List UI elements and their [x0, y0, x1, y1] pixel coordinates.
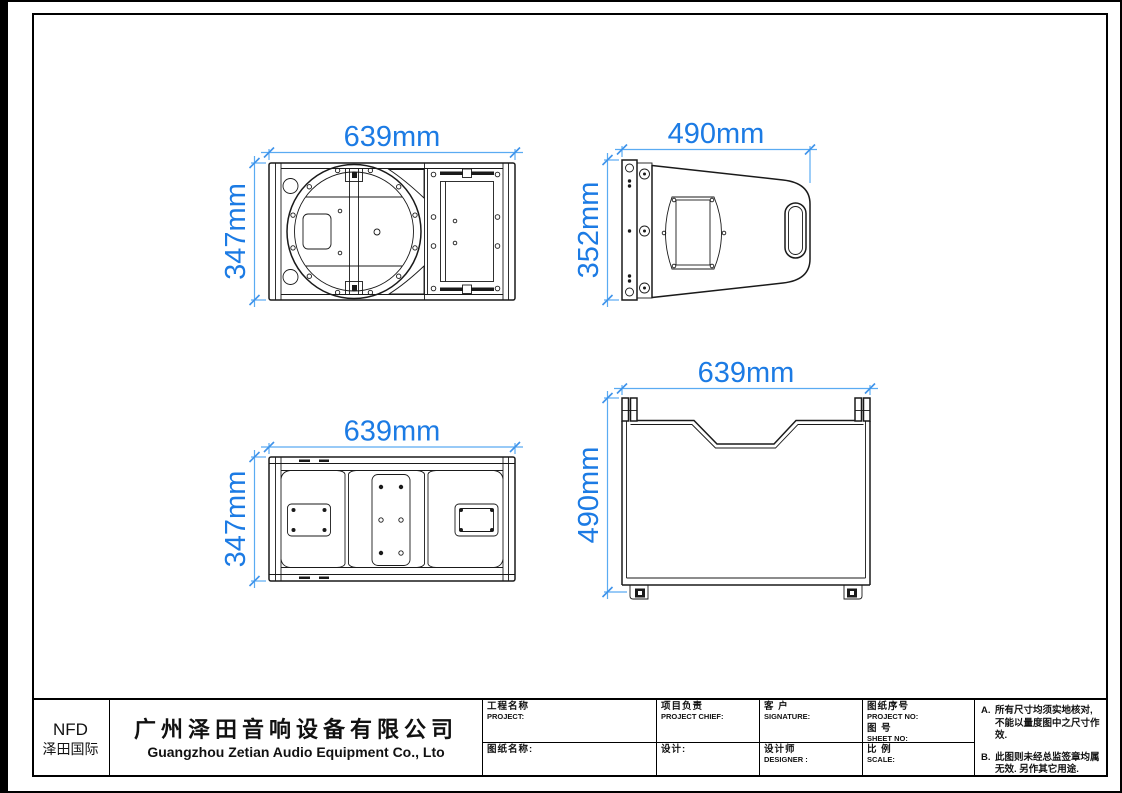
project-label-cn: 工程名称 — [487, 702, 656, 712]
rear-left-plate — [288, 504, 331, 536]
rear-height-dimension: 347mm — [220, 450, 266, 588]
center-brace — [346, 169, 363, 295]
woofer-cutout — [283, 165, 421, 299]
port-cutout — [303, 214, 331, 249]
top-width-dimension: 639mm — [614, 357, 878, 395]
rear-dividers — [337, 471, 436, 568]
speaker-cabinet-drawing: 639mm 347mm — [0, 0, 1122, 700]
note-a-id: A. — [981, 705, 995, 743]
chief-label-cn: 项目负责 — [661, 702, 759, 712]
project-no-label-en: PROJECT NO: — [867, 712, 974, 721]
side-handle — [785, 203, 806, 258]
customer-column: 客 户 SIGNATURE: 设计师 DESIGNER : — [760, 700, 863, 777]
design-label: 设计: — [661, 745, 759, 755]
company-name-cn: 广州泽田音响设备有限公司 — [134, 717, 458, 743]
front-width-label: 639mm — [344, 121, 441, 153]
note-a-text: 所有尺寸均须实地核对, 不能以量度图中之尺寸作效. — [995, 705, 1104, 743]
rear-view: 639mm 347mm — [220, 416, 523, 589]
side-access-panel — [662, 197, 726, 269]
chief-column: 项目负责 PROJECT CHIEF: 设计: — [657, 700, 760, 777]
note-a: A. 所有尺寸均须实地核对, 不能以量度图中之尺寸作效. — [981, 705, 1104, 743]
numbers-column: 图纸序号 PROJECT NO: 图 号 SHEET NO: 比 例 SCALE… — [863, 700, 975, 777]
brand-cell: NFD 泽田国际 — [32, 700, 110, 777]
project-chief-field: 项目负责 PROJECT CHIEF: — [657, 700, 759, 743]
note-b: B. 此图则未经总监签章均属无效. 另作其它用途. — [981, 752, 1104, 777]
company-cell: 广州泽田音响设备有限公司 Guangzhou Zetian Audio Equi… — [110, 700, 483, 777]
company-name-en: Guangzhou Zetian Audio Equipment Co., Lt… — [147, 743, 444, 761]
sheet-no-label-cn: 图 号 — [867, 724, 974, 734]
drawing-name-label: 图纸名称: — [487, 745, 656, 755]
customer-label-en: SIGNATURE: — [764, 712, 862, 721]
project-no-label-cn: 图纸序号 — [867, 702, 974, 712]
side-width-label: 490mm — [668, 118, 765, 150]
project-field: 工程名称 PROJECT: — [483, 700, 656, 743]
front-view: 639mm 347mm — [220, 121, 523, 307]
front-height-label: 347mm — [220, 183, 252, 280]
designer-label-cn: 设计师 — [764, 745, 862, 755]
note-b-text: 此图则未经总监签章均属无效. 另作其它用途. — [995, 752, 1104, 777]
rear-height-label: 347mm — [220, 471, 252, 568]
sheet-no-label-en: SHEET NO: — [867, 734, 974, 743]
top-view: 639mm 490mm — [573, 357, 878, 599]
drawing-name-field: 图纸名称: — [483, 743, 656, 777]
gusset-top — [389, 170, 424, 199]
scale-field: 比 例 SCALE: — [863, 743, 974, 777]
top-width-label: 639mm — [698, 357, 795, 389]
scale-label-cn: 比 例 — [867, 745, 974, 755]
top-height-dimension: 490mm — [573, 391, 627, 599]
feet — [630, 585, 862, 599]
front-height-dimension: 347mm — [220, 156, 266, 307]
chief-label-en: PROJECT CHIEF: — [661, 712, 759, 721]
title-block: NFD 泽田国际 广州泽田音响设备有限公司 Guangzhou Zetian A… — [32, 698, 1108, 777]
rear-width-dimension: 639mm — [261, 416, 523, 455]
customer-label-cn: 客 户 — [764, 702, 862, 712]
connector-plate — [372, 475, 410, 566]
customer-field: 客 户 SIGNATURE: — [760, 700, 862, 743]
drawing-sheet: 639mm 347mm — [0, 0, 1122, 793]
notes-cell: A. 所有尺寸均须实地核对, 不能以量度图中之尺寸作效. B. 此图则未经总监签… — [975, 700, 1108, 777]
designer-field: 设计师 DESIGNER : — [760, 743, 862, 777]
top-height-label: 490mm — [573, 447, 605, 544]
scale-label-en: SCALE: — [867, 755, 974, 764]
side-height-dimension: 352mm — [573, 153, 619, 307]
design-field: 设计: — [657, 743, 759, 777]
woofer-bolt-holes — [291, 168, 417, 294]
brand-name-cn: 泽田国际 — [43, 740, 99, 758]
rear-width-label: 639mm — [344, 416, 441, 448]
project-label-en: PROJECT: — [487, 712, 656, 721]
rear-right-plate — [455, 504, 498, 536]
front-width-dimension: 639mm — [261, 121, 523, 160]
project-column: 工程名称 PROJECT: 图纸名称: — [483, 700, 657, 777]
designer-label-en: DESIGNER : — [764, 755, 862, 764]
gusset-bottom — [389, 266, 424, 294]
note-b-id: B. — [981, 752, 995, 777]
side-view: 490mm 352mm — [573, 118, 817, 307]
brand-code: NFD — [53, 720, 88, 740]
project-no-field: 图纸序号 PROJECT NO: 图 号 SHEET NO: — [863, 700, 974, 743]
side-height-label: 352mm — [573, 182, 605, 279]
horn-panel — [431, 169, 500, 294]
